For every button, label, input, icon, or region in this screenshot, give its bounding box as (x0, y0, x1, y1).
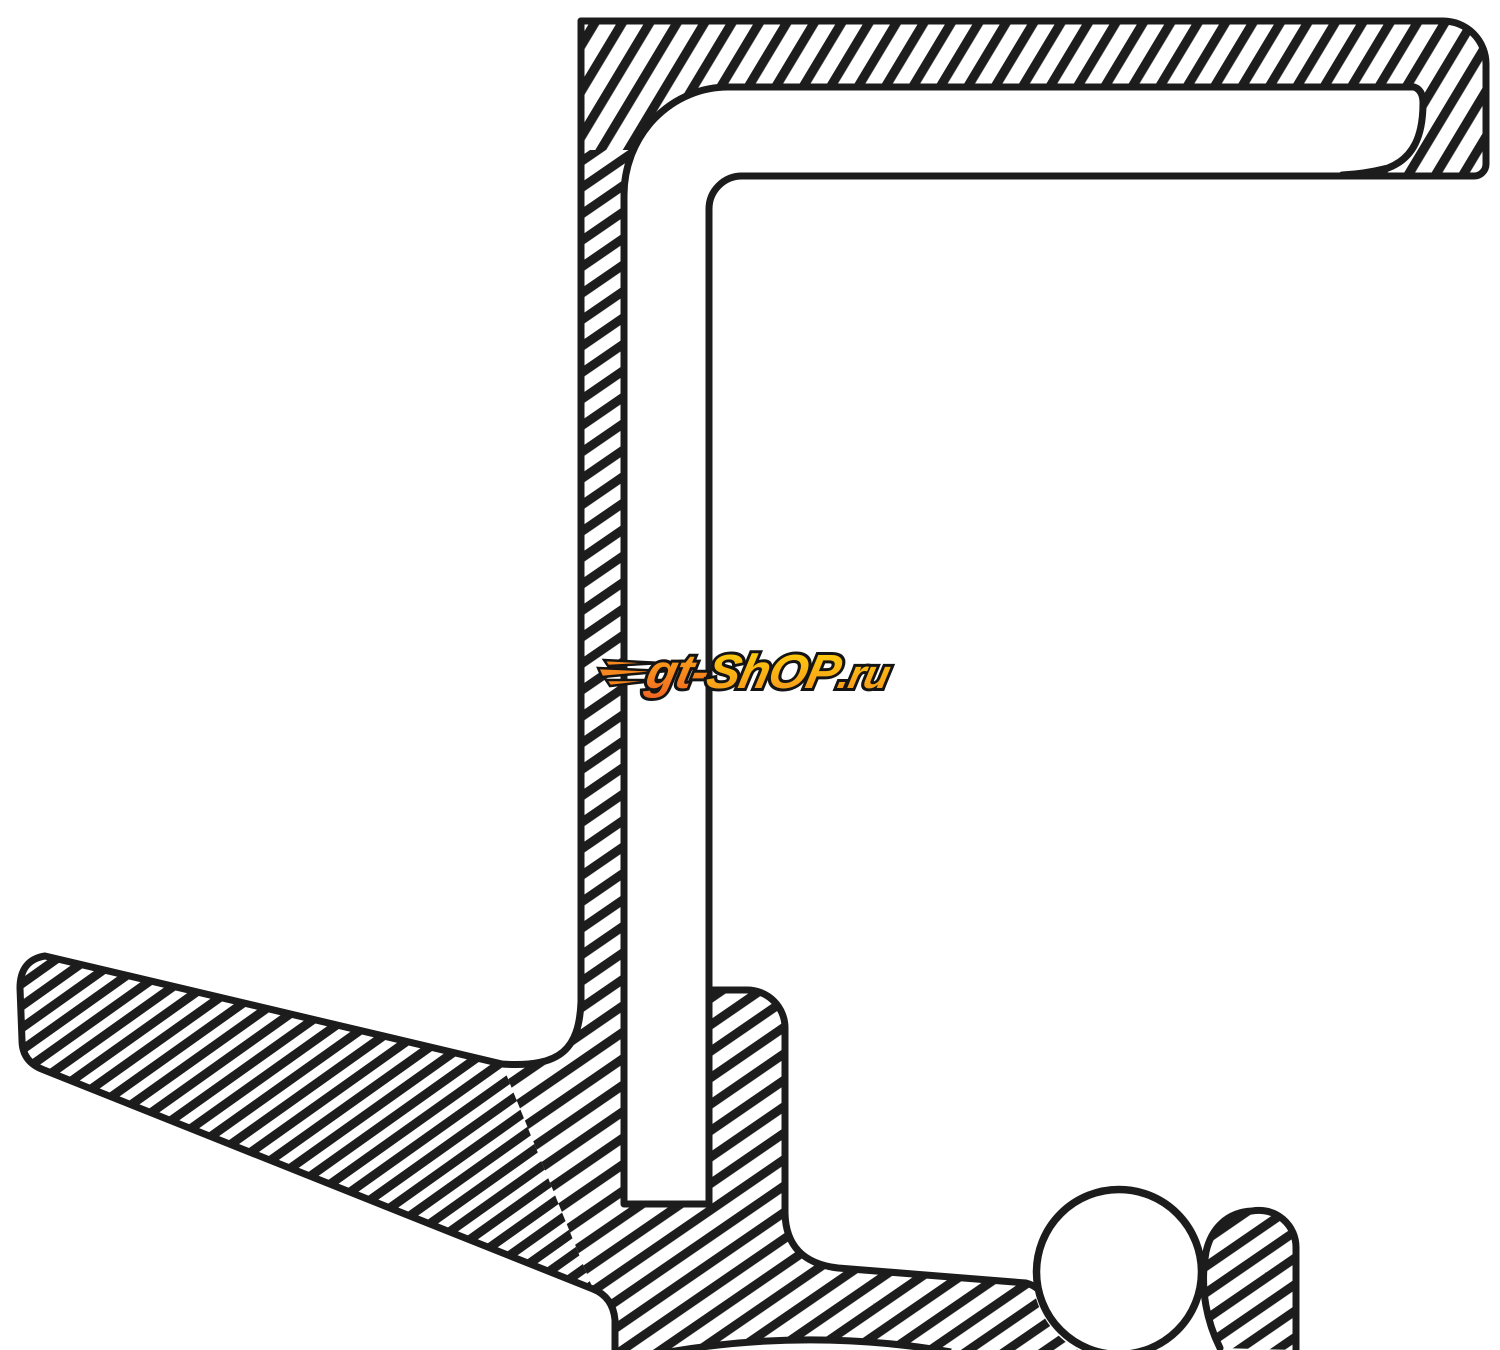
svg-text:gt-ShOP.ru: gt-ShOP.ru (641, 645, 896, 698)
